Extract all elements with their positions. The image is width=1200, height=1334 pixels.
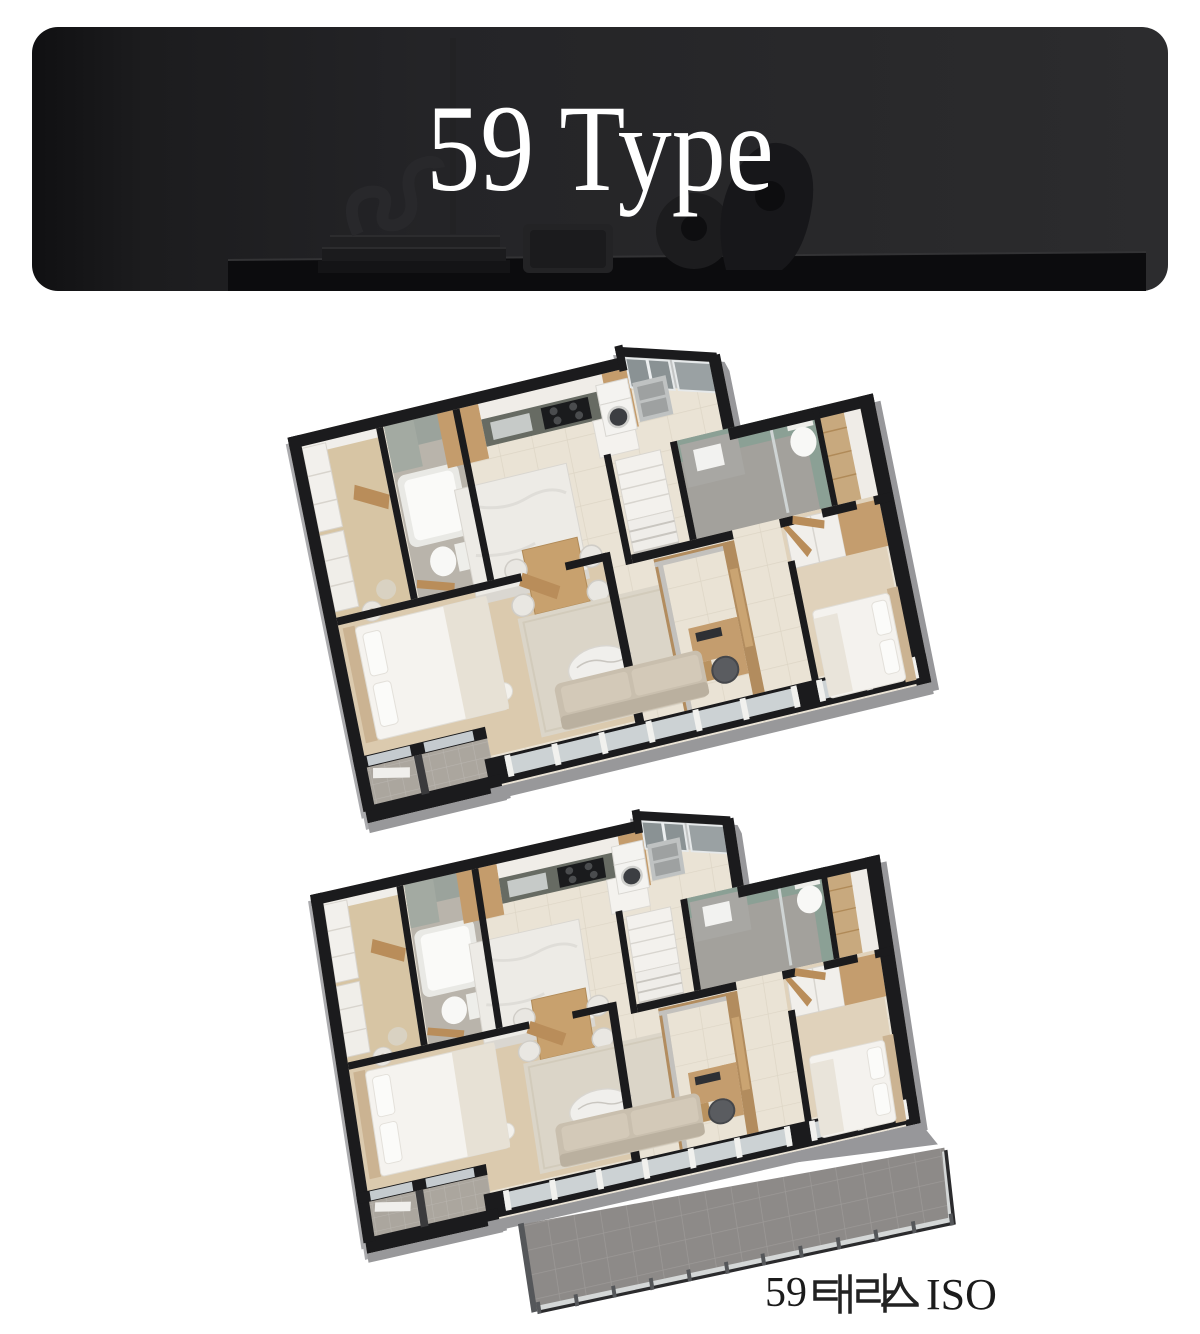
svg-text:59 Type: 59 Type bbox=[426, 80, 773, 218]
svg-text:ISO: ISO bbox=[926, 1270, 997, 1319]
svg-text:59: 59 bbox=[765, 1270, 807, 1316]
